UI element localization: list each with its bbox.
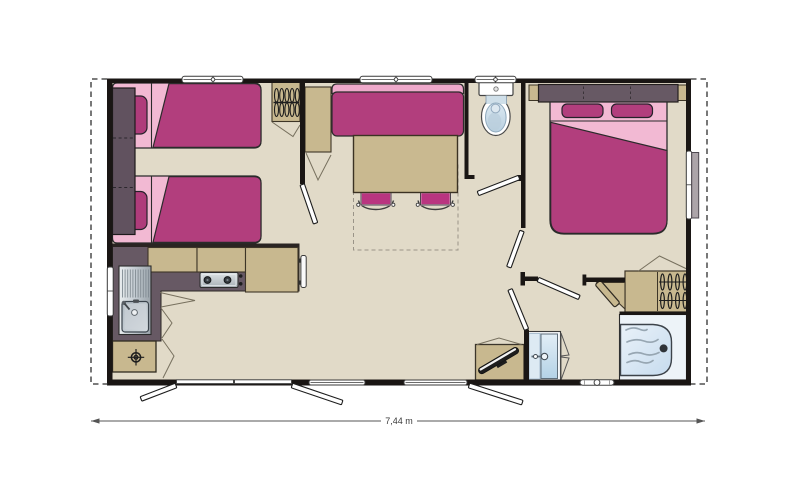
svg-text:7,44 m: 7,44 m bbox=[385, 416, 413, 426]
